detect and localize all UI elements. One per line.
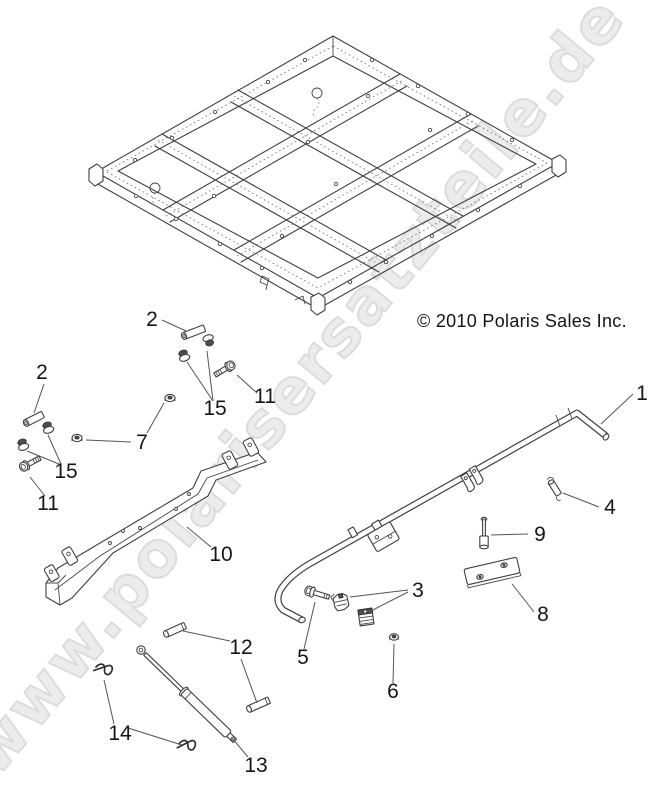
callout-1: 1 [636,382,648,405]
flanged-bushing-part15-right-a [202,333,215,347]
flanged-bushing-part15-right-b [177,349,190,363]
callout-15-left: 15 [54,460,77,483]
frame-bolt-holes [133,58,521,283]
parts-diagram: 1 2 2 3 4 5 6 7 8 9 10 11 11 12 13 14 15… [0,0,650,775]
callout-15-right: 15 [203,397,226,420]
clamp-half-part3-a [330,592,349,612]
callout-5: 5 [297,646,309,669]
callout-11-left: 11 [37,492,59,515]
mounting-plate-part8 [464,557,521,588]
parts-catalog-page: { "watermark": { "text": "www.polarisers… [0,0,650,775]
copyright-notice: © 2010 Polaris Sales Inc. [417,311,627,332]
cargo-box-frame [89,36,566,315]
hex-bolt-part11-right [212,359,236,379]
callout-2-right: 2 [146,308,158,331]
callout-9: 9 [534,523,546,546]
callout-14: 14 [108,722,132,745]
gas-strut-part13 [137,646,239,745]
pivot-rail-part1 [278,408,610,624]
callout-11-right: 11 [254,385,276,408]
clevis-pin-part12-a [163,622,187,638]
hex-bolt-part11-left [18,454,43,473]
flange-nut-part7-right [165,394,175,401]
callout-8: 8 [537,603,549,626]
spacer-tube-part2-left [22,411,44,427]
callout-10: 10 [209,543,232,566]
clevis-pin-part12-b [246,697,271,713]
callout-13: 13 [244,754,267,775]
spacer-tube-part2-right [181,325,206,340]
callout-12: 12 [229,636,252,659]
flange-nut-part6 [390,634,399,640]
flanged-bushing-part15-left-b [16,438,29,452]
callout-7: 7 [136,431,148,454]
spring-clip-part14-a [94,661,113,676]
flange-nut-part7-left [72,434,82,441]
callout-2-left: 2 [36,361,48,384]
hex-bolt-part5 [303,585,330,602]
shoulder-pin-part9 [480,517,488,549]
clip-pin-part4 [545,476,565,502]
callout-3: 3 [412,579,424,602]
callout-4: 4 [604,496,616,519]
flanged-bushing-part15-left-a [41,421,54,435]
tie-down-ring [312,88,322,118]
callout-6: 6 [387,680,399,703]
